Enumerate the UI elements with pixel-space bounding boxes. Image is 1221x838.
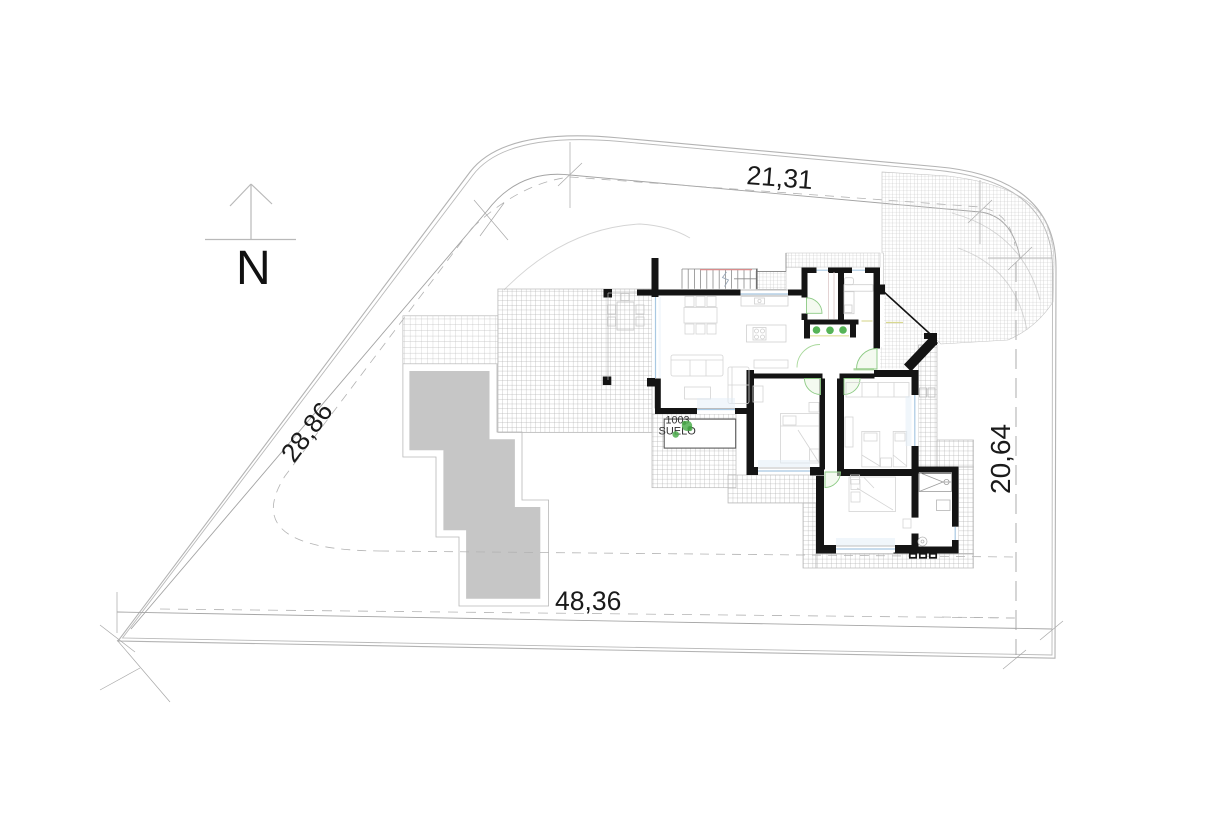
svg-text:48,36: 48,36 [555, 586, 621, 616]
svg-text:28,86: 28,86 [275, 397, 339, 468]
svg-text:20,64: 20,64 [985, 424, 1016, 494]
svg-text:21,31: 21,31 [746, 160, 814, 195]
svg-text:N: N [236, 242, 271, 295]
